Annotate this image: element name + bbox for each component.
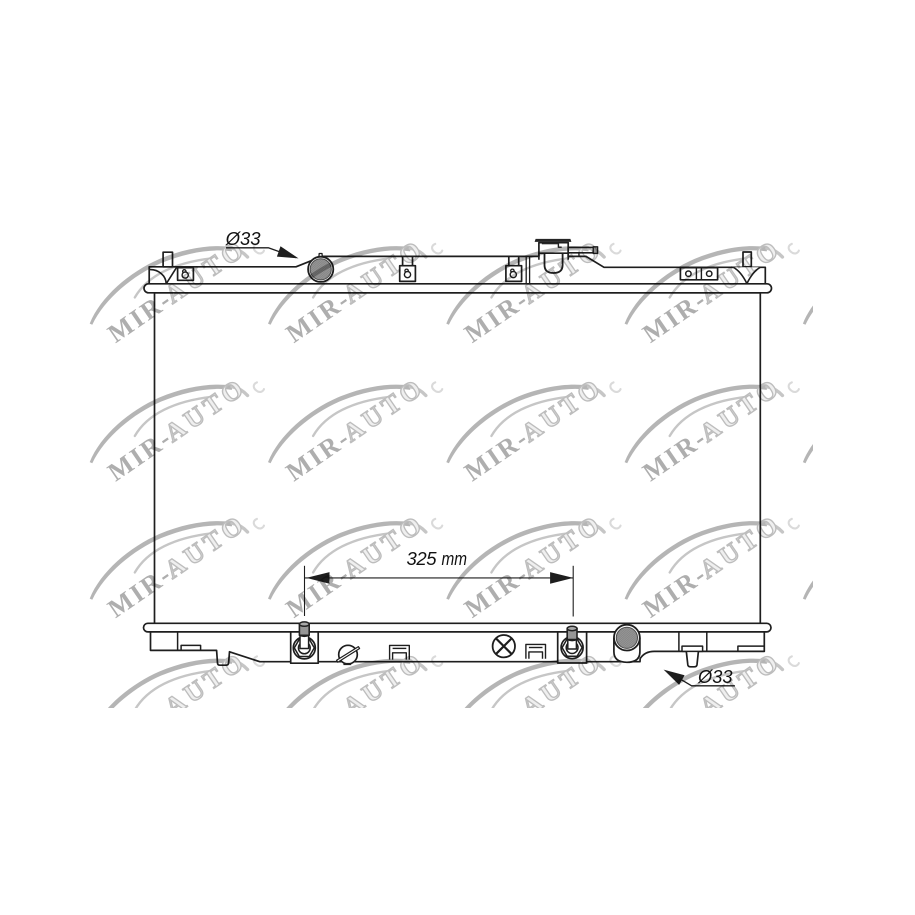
- svg-text:mm: mm: [442, 548, 468, 569]
- svg-text:325: 325: [407, 548, 438, 569]
